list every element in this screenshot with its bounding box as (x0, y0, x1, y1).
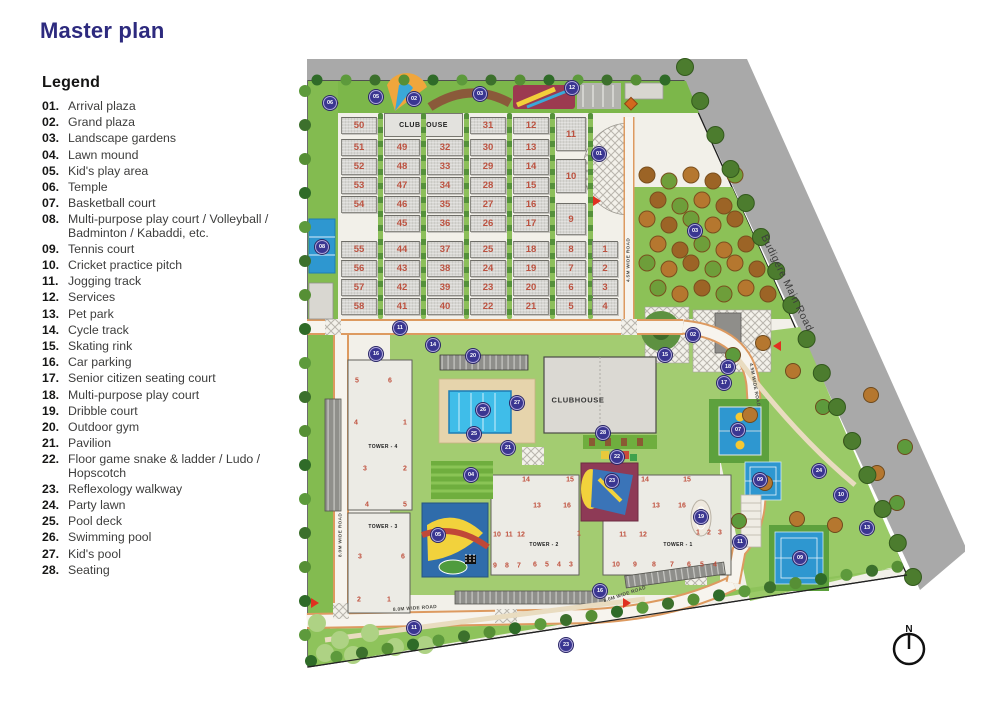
legend-item: 09.Tennis court (42, 243, 296, 256)
legend-item-number: 15. (42, 340, 68, 353)
legend-item: 07.Basketball court (42, 197, 296, 210)
legend-item-number: 20. (42, 421, 68, 434)
legend-item-number: 14. (42, 324, 68, 337)
legend-item: 08.Multi-purpose play court / Volleyball… (42, 213, 296, 239)
tower-footprint (348, 513, 410, 613)
legend-item-text: Cricket practice pitch (68, 259, 182, 272)
parking-stalls (625, 83, 663, 99)
legend-item: 15.Skating rink (42, 340, 296, 353)
legend-item-number: 19. (42, 405, 68, 418)
legend-item-text: Pavilion (68, 437, 111, 450)
parking-strip-1 (455, 591, 605, 604)
legend-item-text: Outdoor gym (68, 421, 139, 434)
legend-item-text: Pet park (68, 308, 114, 321)
legend-item-number: 09. (42, 243, 68, 256)
legend-item: 28.Seating (42, 564, 296, 577)
legend-item-text: Seating (68, 564, 110, 577)
dribble-oval (691, 500, 711, 536)
legend-item-text: Arrival plaza (68, 100, 136, 113)
legend-item-number: 05. (42, 165, 68, 178)
legend-item-text: Temple (68, 181, 108, 194)
legend-item-number: 17. (42, 372, 68, 385)
legend-item: 25.Pool deck (42, 515, 296, 528)
legend-item: 13.Pet park (42, 308, 296, 321)
legend-item-text: Basketball court (68, 197, 156, 210)
legend-item: 04.Lawn mound (42, 149, 296, 162)
legend-item-text: Pool deck (68, 515, 122, 528)
legend-item-number: 21. (42, 437, 68, 450)
legend-item-number: 24. (42, 499, 68, 512)
legend-item-number: 02. (42, 116, 68, 129)
legend-item-number: 18. (42, 389, 68, 402)
legend-item-number: 23. (42, 483, 68, 496)
legend-item-text: Kid's pool (68, 548, 121, 561)
legend-item-number: 27. (42, 548, 68, 561)
services-building (325, 399, 341, 511)
legend-item: 03.Landscape gardens (42, 132, 296, 145)
legend-item-text: Jogging track (68, 275, 141, 288)
legend-item-number: 08. (42, 213, 68, 239)
legend-item-number: 25. (42, 515, 68, 528)
site-plan-artwork (295, 55, 965, 705)
legend-item-number: 06. (42, 181, 68, 194)
legend-item: 26.Swimming pool (42, 531, 296, 544)
paving-hatch-2 (522, 447, 544, 465)
legend-item: 01.Arrival plaza (42, 100, 296, 113)
legend-item-number: 28. (42, 564, 68, 577)
legend-item-number: 10. (42, 259, 68, 272)
legend-item-number: 13. (42, 308, 68, 321)
legend: Legend 01.Arrival plaza02.Grand plaza03.… (42, 74, 296, 580)
legend-list: 01.Arrival plaza02.Grand plaza03.Landsca… (42, 100, 296, 577)
legend-item: 05.Kid's play area (42, 165, 296, 178)
legend-item-text: Swimming pool (68, 531, 151, 544)
legend-item: 22.Floor game snake & ladder / Ludo / Ho… (42, 453, 296, 479)
pergola (440, 355, 528, 370)
legend-item-text: Cycle track (68, 324, 129, 337)
legend-item-number: 07. (42, 197, 68, 210)
legend-item: 21.Pavilion (42, 437, 296, 450)
legend-item-text: Reflexology walkway (68, 483, 182, 496)
legend-item-number: 04. (42, 149, 68, 162)
site-plan: CLUBHOUSE 505152535455565758494847464544… (295, 55, 965, 705)
legend-item-text: Multi-purpose play court (68, 389, 199, 402)
master-plan-page: Master plan Legend 01.Arrival plaza02.Gr… (0, 0, 1000, 707)
services-box (309, 283, 333, 319)
legend-item-number: 22. (42, 453, 68, 479)
legend-item-text: Car parking (68, 356, 132, 369)
legend-heading: Legend (42, 74, 296, 92)
legend-item-number: 01. (42, 100, 68, 113)
legend-item: 12.Services (42, 291, 296, 304)
legend-item-number: 26. (42, 531, 68, 544)
legend-item: 10.Cricket practice pitch (42, 259, 296, 272)
swimming-pool (449, 391, 511, 433)
legend-item: 17.Senior citizen seating court (42, 372, 296, 385)
tower-footprint (348, 360, 412, 510)
legend-item-text: Senior citizen seating court (68, 372, 216, 385)
legend-item: 02.Grand plaza (42, 116, 296, 129)
legend-item-number: 11. (42, 275, 68, 288)
legend-item-text: Tennis court (68, 243, 134, 256)
page-title: Master plan (40, 18, 164, 44)
tower-footprint (491, 475, 579, 575)
legend-item-text: Kid's play area (68, 165, 148, 178)
legend-item-text: Dribble court (68, 405, 138, 418)
legend-item-text: Multi-purpose play court / Volleyball / … (68, 213, 296, 239)
legend-item-number: 12. (42, 291, 68, 304)
legend-item-text: Lawn mound (68, 149, 138, 162)
legend-item: 23.Reflexology walkway (42, 483, 296, 496)
legend-item: 16.Car parking (42, 356, 296, 369)
legend-item: 11.Jogging track (42, 275, 296, 288)
legend-item-text: Party lawn (68, 499, 125, 512)
legend-item-text: Skating rink (68, 340, 132, 353)
legend-item: 14.Cycle track (42, 324, 296, 337)
multipurpose-court-left (309, 219, 335, 273)
kids-play-area (422, 503, 488, 577)
kids-play-area-2 (581, 463, 638, 521)
legend-item-text: Landscape gardens (68, 132, 176, 145)
legend-item: 06.Temple (42, 181, 296, 194)
lawn-mound (431, 461, 493, 499)
legend-item: 27.Kid's pool (42, 548, 296, 561)
legend-item-text: Grand plaza (68, 116, 135, 129)
legend-item-text: Services (68, 291, 115, 304)
legend-item: 18.Multi-purpose play court (42, 389, 296, 402)
legend-item-number: 03. (42, 132, 68, 145)
legend-item: 20.Outdoor gym (42, 421, 296, 434)
legend-item-text: Floor game snake & ladder / Ludo / Hopsc… (68, 453, 296, 479)
legend-item: 19.Dribble court (42, 405, 296, 418)
legend-item-number: 16. (42, 356, 68, 369)
legend-item: 24.Party lawn (42, 499, 296, 512)
